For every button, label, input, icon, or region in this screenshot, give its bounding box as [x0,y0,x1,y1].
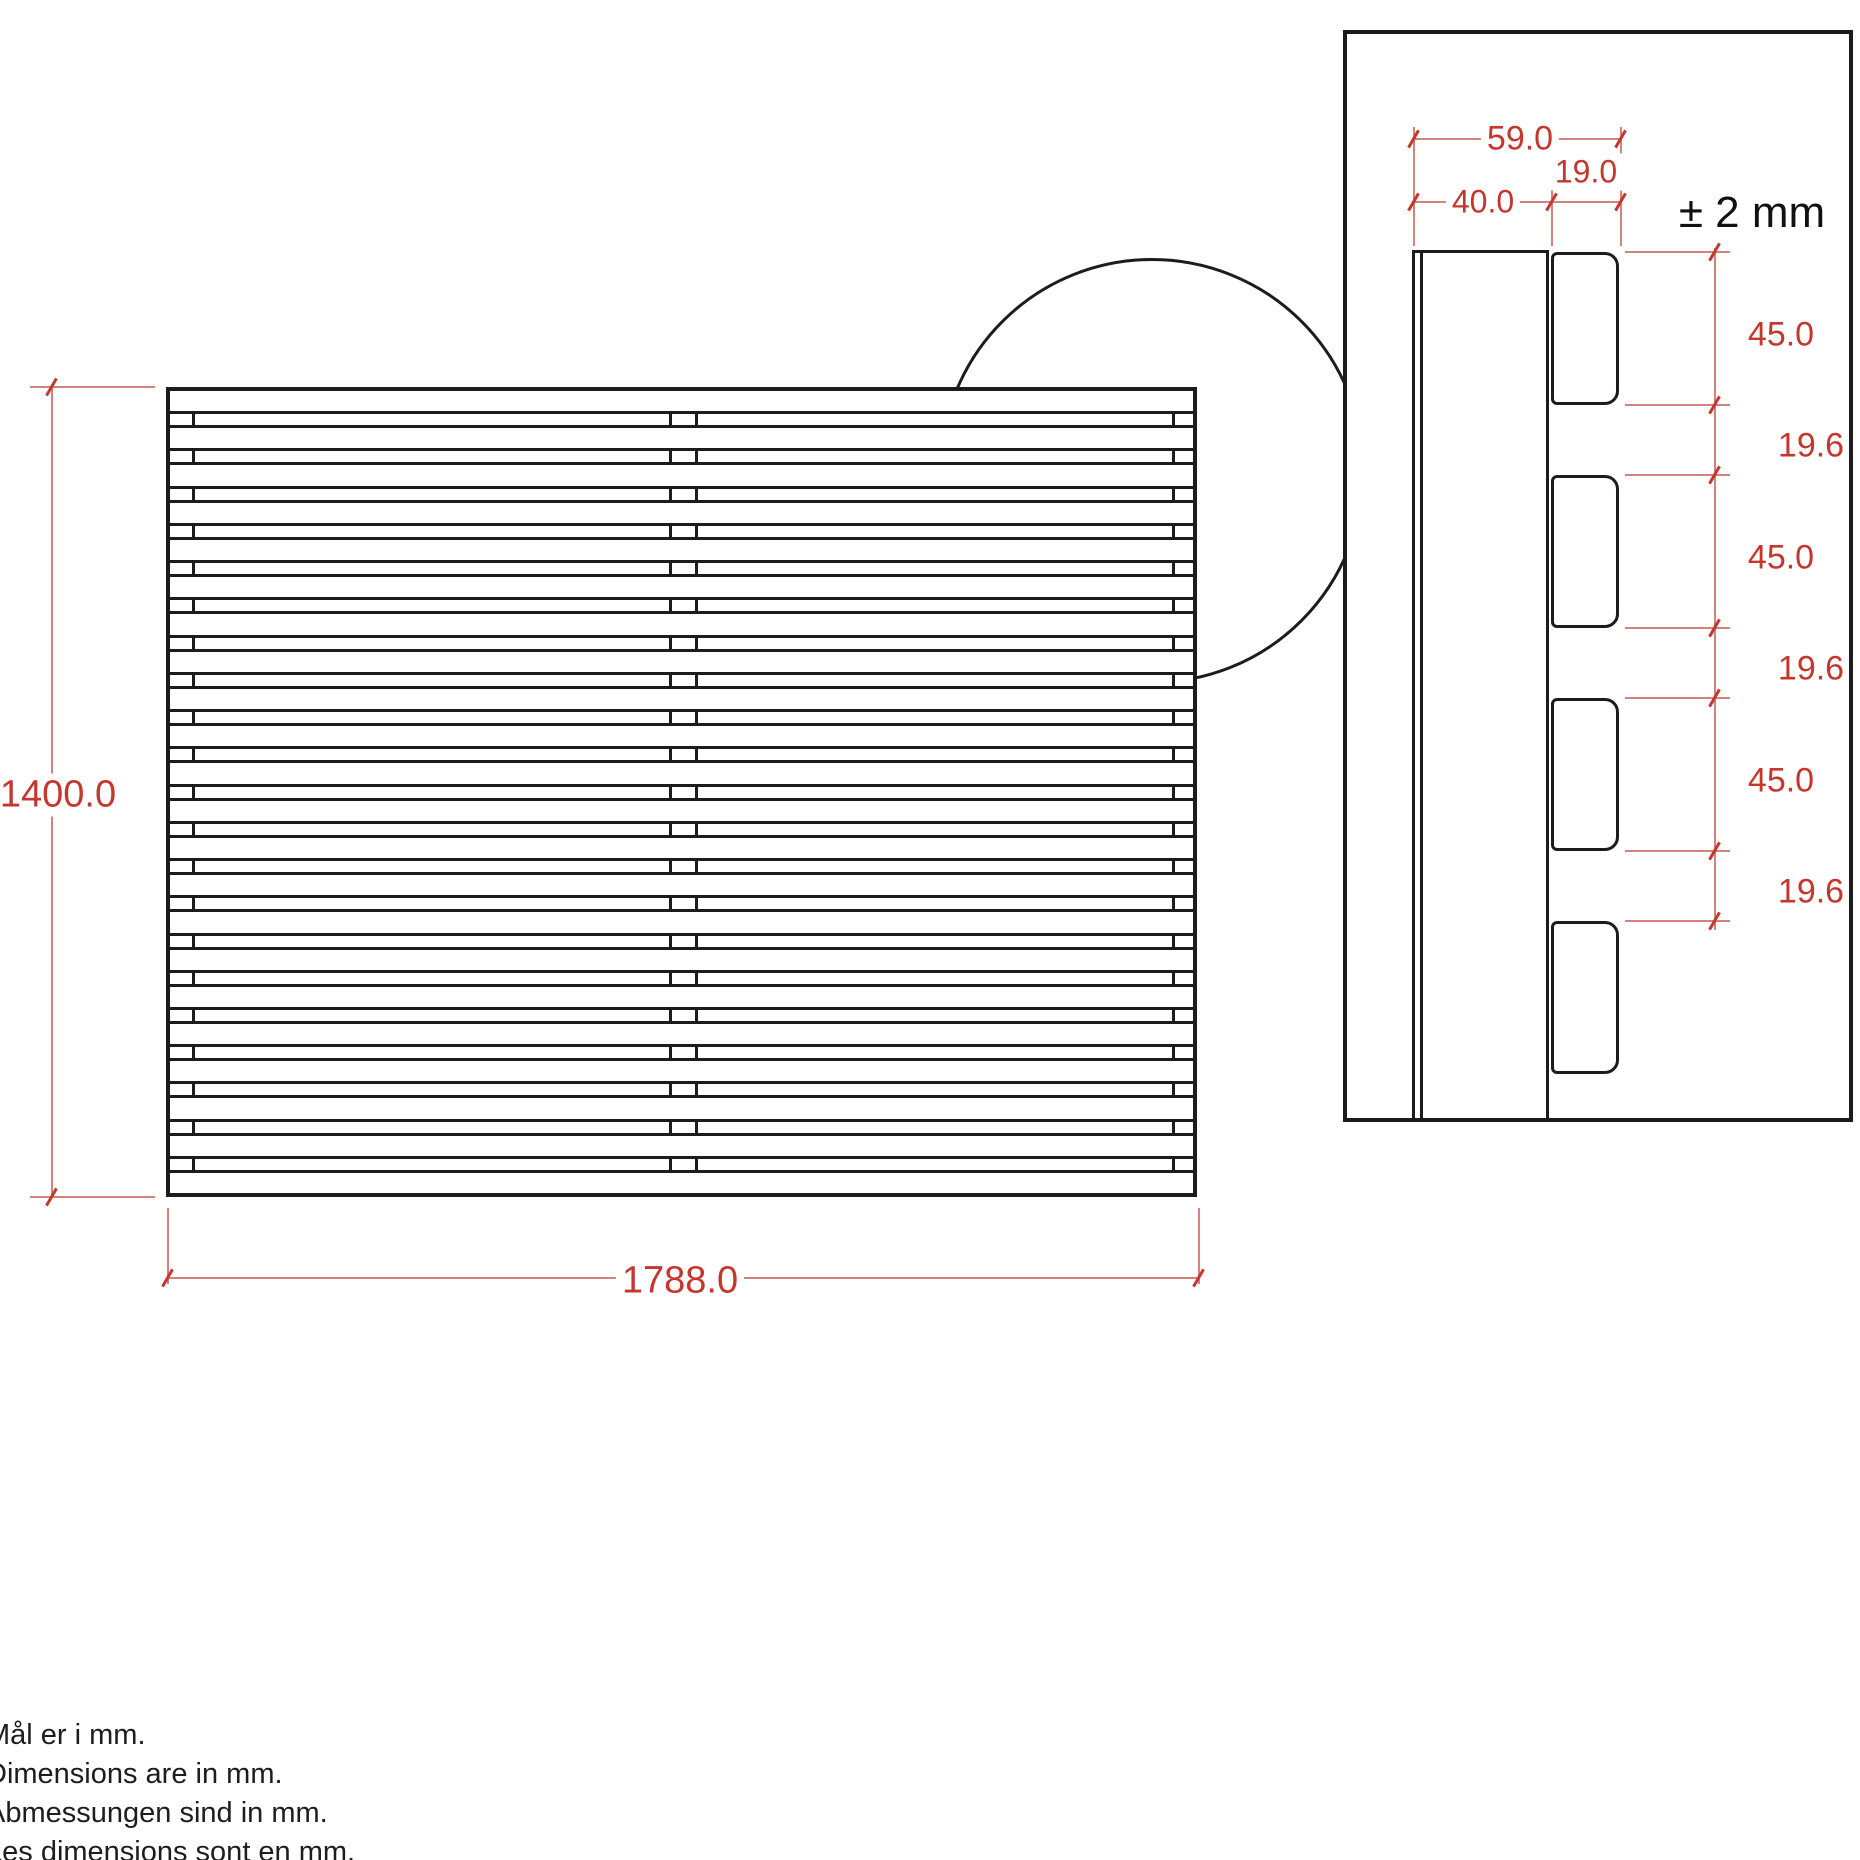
batten-tick [1172,1044,1175,1061]
slat-gap-row [170,1007,1193,1024]
batten-tick [669,560,672,577]
slat-gap-row [170,523,1193,540]
slat-gap-row [170,635,1193,652]
slat-gap-row [170,1156,1193,1173]
batten-tick [695,1156,698,1173]
slat-gap-row [170,784,1193,801]
slat-gap-row [170,970,1193,987]
slat-row [170,763,1193,783]
batten-tick [192,1044,195,1061]
batten-tick [1172,1081,1175,1098]
batten-tick [1172,1007,1175,1024]
slat-row [170,1098,1193,1118]
batten-tick [1172,970,1175,987]
slat-gap-row [170,560,1193,577]
batten-tick [669,597,672,614]
batten-tick [695,672,698,689]
batten-tick [695,1007,698,1024]
slat-gap-row [170,1044,1193,1061]
section-slat-block [1551,252,1619,405]
batten-tick [669,1081,672,1098]
batten-tick [695,1119,698,1136]
dim-total-depth-label: 59.0 [1481,120,1559,159]
slat-row [170,875,1193,895]
batten-tick [695,560,698,577]
section-batten-board [1412,250,1549,1118]
batten-tick [669,486,672,503]
front-view-panel [166,387,1197,1197]
side-dim-label: 19.6 [1772,873,1850,912]
batten-tick [1172,635,1175,652]
batten-tick [1172,597,1175,614]
slat-row [170,503,1193,523]
batten-tick [695,746,698,763]
side-dim-label: 19.6 [1772,427,1850,466]
section-strip-divider [1420,253,1423,1118]
batten-tick [695,1081,698,1098]
slat-row [170,391,1193,411]
slat-gap-row [170,858,1193,875]
slat-row [170,1024,1193,1044]
slat-gap-row [170,746,1193,763]
side-dim-label: 45.0 [1742,761,1820,800]
batten-tick [1172,486,1175,503]
batten-tick [1172,1156,1175,1173]
slat-gap-row [170,709,1193,726]
batten-tick [192,411,195,428]
batten-tick [1172,523,1175,540]
slat-row [170,1061,1193,1081]
batten-tick [695,486,698,503]
slat-row [170,428,1193,448]
slat-gap-row [170,597,1193,614]
batten-tick [695,858,698,875]
batten-tick [1172,895,1175,912]
slat-gap-row [170,672,1193,689]
batten-tick [192,1119,195,1136]
batten-tick [669,895,672,912]
dim-height-label: 1400.0 [0,774,122,817]
batten-tick [669,448,672,465]
slat-row [170,614,1193,634]
batten-tick [192,1081,195,1098]
batten-tick [192,486,195,503]
batten-tick [669,411,672,428]
batten-tick [192,635,195,652]
dim-slat-depth-label: 19.0 [1549,154,1623,191]
batten-tick [192,1007,195,1024]
batten-tick [669,1119,672,1136]
batten-tick [192,933,195,950]
slat-gap-row [170,411,1193,428]
batten-tick [1172,448,1175,465]
batten-tick [192,970,195,987]
batten-tick [192,1156,195,1173]
slat-row [170,950,1193,970]
slat-row [170,540,1193,560]
batten-tick [192,746,195,763]
slat-row [170,838,1193,858]
slat-row [170,652,1193,672]
slat-gap-row [170,448,1193,465]
batten-tick [192,448,195,465]
batten-tick [1172,746,1175,763]
batten-tick [695,970,698,987]
batten-tick [669,1007,672,1024]
batten-tick [695,411,698,428]
slat-gap-row [170,821,1193,838]
batten-tick [1172,1119,1175,1136]
note-line: Dimensions are in mm. [0,1755,355,1794]
note-line: Abmessungen sind in mm. [0,1794,355,1833]
batten-tick [1172,858,1175,875]
batten-tick [192,560,195,577]
batten-tick [695,523,698,540]
batten-tick [669,784,672,801]
section-slat-block [1551,698,1619,851]
section-slat-block [1551,475,1619,628]
batten-tick [695,895,698,912]
technical-drawing-canvas: 1400.0 1788.0 59.0 40.0 19.0 ± 2 mm 45.0… [0,0,1860,1860]
batten-tick [669,635,672,652]
dim-batten-depth-label: 40.0 [1446,184,1520,221]
notes-block: Mål er i mm.Dimensions are in mm.Abmessu… [0,1716,355,1860]
batten-tick [1172,672,1175,689]
batten-tick [192,784,195,801]
batten-tick [192,858,195,875]
slat-row [170,577,1193,597]
batten-tick [669,821,672,838]
batten-tick [669,523,672,540]
slat-row [170,801,1193,821]
batten-tick [669,746,672,763]
batten-tick [695,784,698,801]
slat-gap-row [170,933,1193,950]
batten-tick [695,933,698,950]
batten-tick [1172,821,1175,838]
batten-tick [192,597,195,614]
batten-tick [669,1044,672,1061]
batten-tick [1172,709,1175,726]
dim-chain-line [1714,248,1716,930]
batten-tick [1172,933,1175,950]
batten-tick [695,448,698,465]
slat-row [170,465,1193,485]
slat-row [170,912,1193,932]
slat-gap-row [170,1081,1193,1098]
batten-tick [695,597,698,614]
dim-depth-ext-left [1413,127,1415,246]
batten-tick [669,1156,672,1173]
batten-tick [669,672,672,689]
batten-tick [695,1044,698,1061]
slat-row [170,1136,1193,1156]
slat-gap-row [170,895,1193,912]
slat-row [170,987,1193,1007]
slat-gap-row [170,486,1193,503]
batten-tick [695,635,698,652]
batten-tick [1172,411,1175,428]
batten-tick [192,523,195,540]
batten-tick [192,821,195,838]
batten-tick [192,672,195,689]
batten-tick [695,821,698,838]
batten-tick [669,858,672,875]
slat-gap-row [170,1119,1193,1136]
slat-row [170,689,1193,709]
batten-tick [1172,784,1175,801]
section-slat-block [1551,921,1619,1074]
side-dim-label: 45.0 [1742,538,1820,577]
tolerance-note: ± 2 mm [1679,188,1825,238]
side-dim-label: 19.6 [1772,650,1850,689]
note-line: Mål er i mm. [0,1716,355,1755]
batten-tick [192,895,195,912]
slat-row [170,726,1193,746]
batten-tick [695,709,698,726]
batten-tick [669,933,672,950]
batten-tick [192,709,195,726]
batten-tick [1172,560,1175,577]
note-line: Les dimensions sont en mm. [0,1833,355,1860]
batten-tick [669,709,672,726]
batten-tick [669,970,672,987]
slat-row [170,1173,1193,1193]
side-dim-label: 45.0 [1742,315,1820,354]
dim-width-label: 1788.0 [616,1260,744,1303]
